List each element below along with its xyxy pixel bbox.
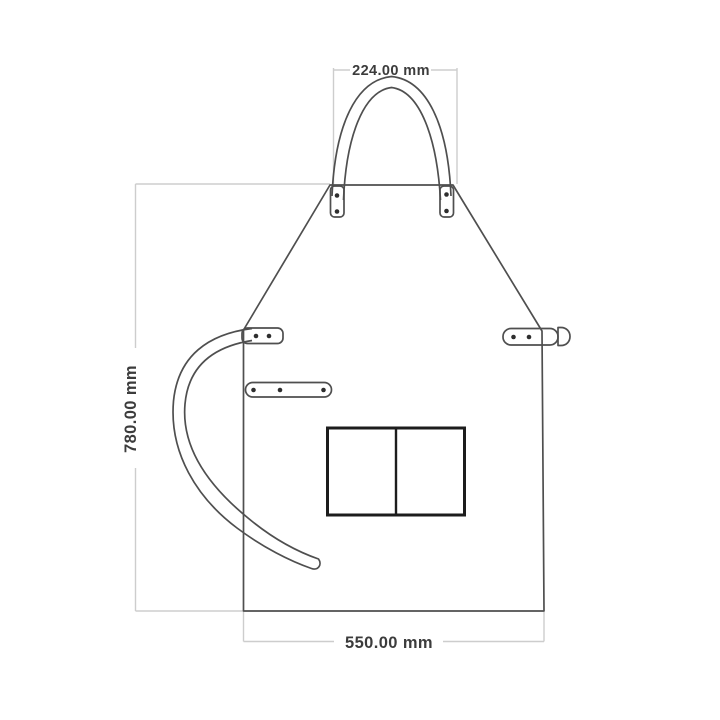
rivet [444,209,449,214]
pocket [328,428,465,515]
rivet [251,388,256,393]
rivets [251,192,531,392]
rivet [444,192,449,197]
neck-strap-inner-curve [344,88,441,201]
neck-strap-outer-curve [332,77,451,197]
dim-bottom-label: 550.00 mm [345,634,433,652]
drawing-svg: 224.00 mm 780.00 mm 550.00 mm [0,0,720,720]
rivet [254,334,259,339]
apron-body-outline [244,185,545,611]
apron-technical-drawing: 224.00 mm 780.00 mm 550.00 mm [0,0,720,720]
rivet [335,209,340,214]
mid-strap-three-rivets [246,383,332,398]
rivet [267,334,272,339]
waist-tie-strap-left [173,329,320,570]
rivet [321,388,326,393]
rivet [511,335,516,340]
dim-left-label: 780.00 mm [122,365,140,453]
rivet [335,193,340,198]
dim-top-extension-lines [334,68,458,184]
apron [173,77,570,612]
rivet [527,335,532,340]
waist-strap-right-tip [558,328,570,346]
rivet [278,388,283,393]
dimension-lines [136,68,545,642]
